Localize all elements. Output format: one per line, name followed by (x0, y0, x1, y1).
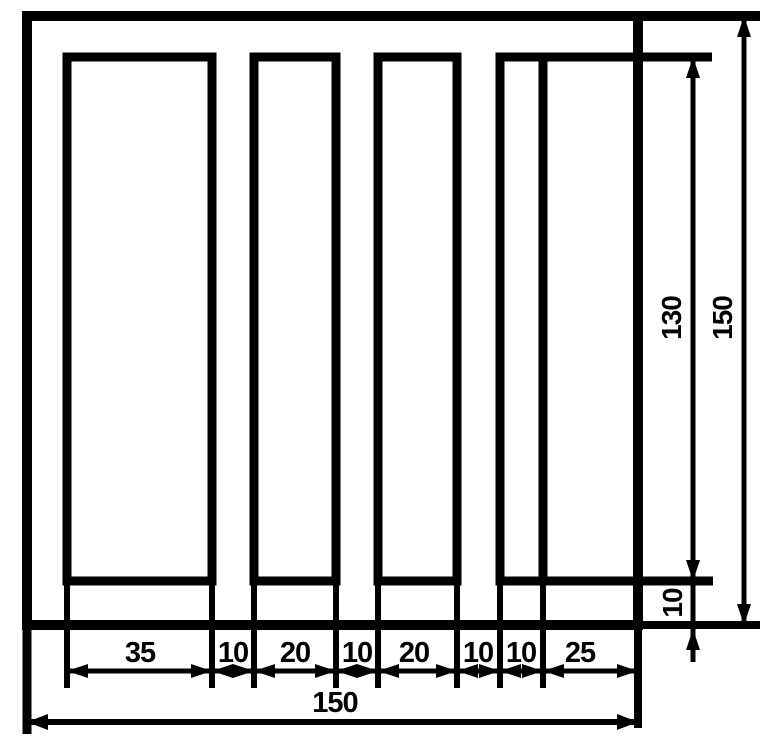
dim-label-slot1-width: 35 (125, 637, 156, 669)
dim-label-slot3-width: 20 (399, 637, 429, 669)
dim-label-slot2-width: 20 (280, 637, 310, 669)
dim-label-slot4-width: 10 (506, 637, 536, 669)
engineering-drawing: 35 10 20 10 20 10 10 25 150 130 150 10 (0, 0, 774, 748)
canvas-background (0, 0, 774, 748)
dim-label-total-height: 150 (707, 296, 738, 340)
dim-label-right-margin: 25 (565, 637, 596, 669)
dim-label-bottom-web: 10 (657, 588, 688, 618)
dim-label-web1: 10 (218, 637, 248, 669)
dim-label-total-width: 150 (312, 687, 357, 719)
dim-label-web2: 10 (342, 637, 372, 669)
drawing-canvas: 35 10 20 10 20 10 10 25 150 130 150 10 (0, 0, 774, 748)
dim-label-web3: 10 (463, 637, 493, 669)
dim-label-slot-depth: 130 (656, 296, 687, 340)
